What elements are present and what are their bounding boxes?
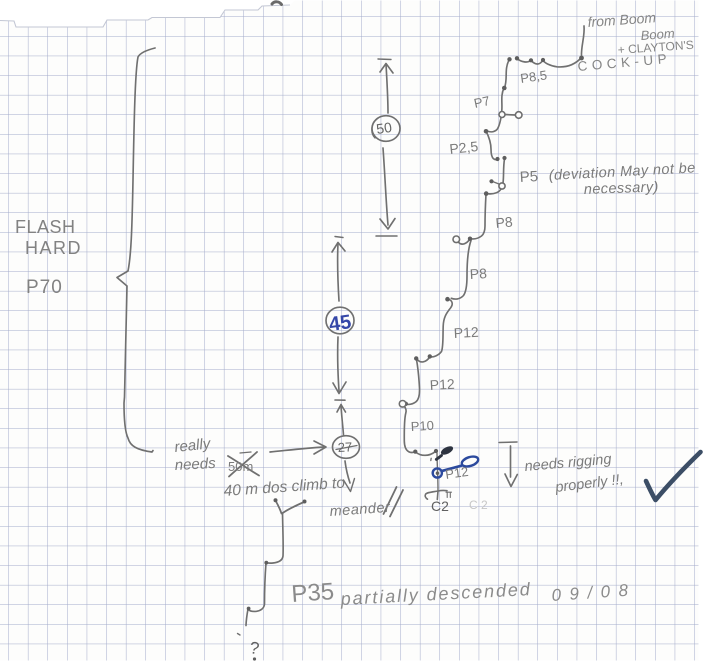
svg-text:P8: P8 — [469, 265, 487, 282]
svg-text:needs: needs — [174, 455, 216, 474]
svg-text:C2: C2 — [431, 498, 449, 514]
svg-text:50m: 50m — [228, 459, 253, 474]
svg-text:necessary): necessary) — [584, 179, 659, 198]
svg-text:P8: P8 — [495, 214, 514, 231]
svg-text:P35: P35 — [291, 578, 335, 608]
svg-text:P70: P70 — [26, 277, 63, 298]
svg-text:27: 27 — [337, 439, 352, 455]
svg-text:P5: P5 — [519, 168, 538, 186]
svg-text:P12: P12 — [444, 464, 469, 482]
svg-text:P2,5: P2,5 — [449, 138, 480, 157]
svg-text:FLASH: FLASH — [15, 217, 76, 237]
svg-text:50: 50 — [375, 119, 393, 137]
svg-text:HARD: HARD — [25, 238, 82, 258]
svg-text:P12: P12 — [453, 324, 479, 341]
svg-text:P10: P10 — [410, 418, 434, 434]
svg-text:C 2: C 2 — [469, 498, 488, 512]
svg-text:45: 45 — [328, 311, 353, 336]
svg-text:P12: P12 — [429, 376, 455, 393]
